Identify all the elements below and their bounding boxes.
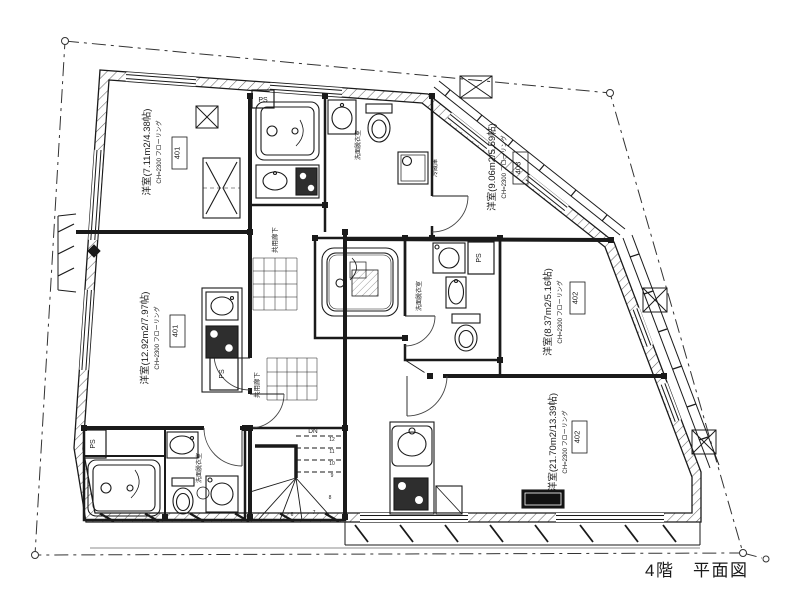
washbasin-bottom-left [167,432,198,458]
room-number: 402 [571,292,580,305]
floor-plan-sheet: 洋室(7.11m2/4.38帖) CH=2300 フローリング 401 洋室(1… [0,0,797,595]
room-spec: CH=2300 フローリング [155,120,163,183]
tile-grid-1 [253,258,297,310]
bathtub-central [322,248,398,316]
stair-step-number: 9 [331,473,334,479]
ps-label: PS [90,439,97,449]
stair-step-number: 11 [329,449,334,455]
stair-step-number: 12 [329,437,335,443]
columns [81,93,667,520]
toilet-bottom-left [172,478,209,514]
boundary-marker [32,552,39,559]
room-label: 洋室(9.06m2/5.59帖) [486,123,498,211]
x-box [460,76,492,98]
windows [82,75,679,520]
stair-step-number: 10 [329,461,335,467]
room-number: 402 [573,431,582,444]
door-unit402 [407,376,447,416]
balcony-hatch-ticks [355,525,676,542]
drawing-title: 4階 平面図 [645,561,748,580]
washroom-label: 洗面脱衣室 [195,453,203,483]
dn-label: DN [308,428,318,435]
room-number: 403 [514,162,523,175]
x-box [196,106,218,128]
stair-step-number: 6 [291,512,294,518]
washing-machine-bottom-left [206,476,238,512]
toilet-right [452,314,480,351]
floor-plan-drawing: 洋室(7.11m2/4.38帖) CH=2300 フローリング 401 洋室(1… [0,0,797,595]
stair-step-number: 8 [329,495,332,501]
toilet-top [366,104,392,142]
room-spec: CH=2300 フローリング [153,306,161,369]
balcony-hatch-ticks [58,224,74,276]
room-number: 401 [173,147,182,160]
refrigerator-label: 冷蔵庫 [431,159,439,177]
washroom-label: 洗面脱衣室 [354,130,362,160]
room-label: 洋室(8.37m2/5.16帖) [542,268,554,356]
boundary-marker [763,556,769,562]
ps-label: PS [258,97,268,104]
room-number: 401 [171,325,180,338]
room-label: 洋室(12.92m2/7.97帖) [139,292,151,385]
washbasin-top [328,100,356,134]
corridor-label: 共用廊下 [252,372,261,399]
room-label: 洋室(7.11m2/4.38帖) [141,109,153,196]
washing-machine-right [433,243,465,273]
room-label: 洋室(21.70m2/13.39帖) [547,393,559,491]
stair-step-number: 7 [313,510,316,516]
boundary-marker [607,90,614,97]
kitchen-401-upper [256,165,319,198]
floor-tile-grids [253,258,317,400]
washroom-label: 洗面脱衣室 [415,281,423,311]
ps-label: PS [476,253,483,263]
refrigerator-space [398,152,428,184]
room-spec: CH=2300 フローリング [556,280,564,343]
kitchen-402 [390,422,462,514]
bathtub-bottom-left [88,460,160,516]
x-box [692,430,716,454]
room-spec: CH=2300 フローリング [561,410,569,473]
washbasin-right [446,277,466,308]
room-spec: CH=2300 フローリング [500,135,508,198]
ps-label: PS [219,369,226,379]
boundary-marker [62,38,69,45]
door-washroom-right [405,316,435,346]
boundary-marker [740,550,747,557]
bathtub-401-upper [256,102,319,160]
equipment-tag [522,490,564,508]
door-unit403 [432,196,468,232]
corridor-label: 共用廊下 [270,227,279,254]
balcony-hatch-ticks [445,90,607,221]
door-washroom-left [204,428,242,466]
interior-walls [76,96,664,520]
closet-folding-doors [203,158,240,218]
stair-handrail [255,446,296,478]
